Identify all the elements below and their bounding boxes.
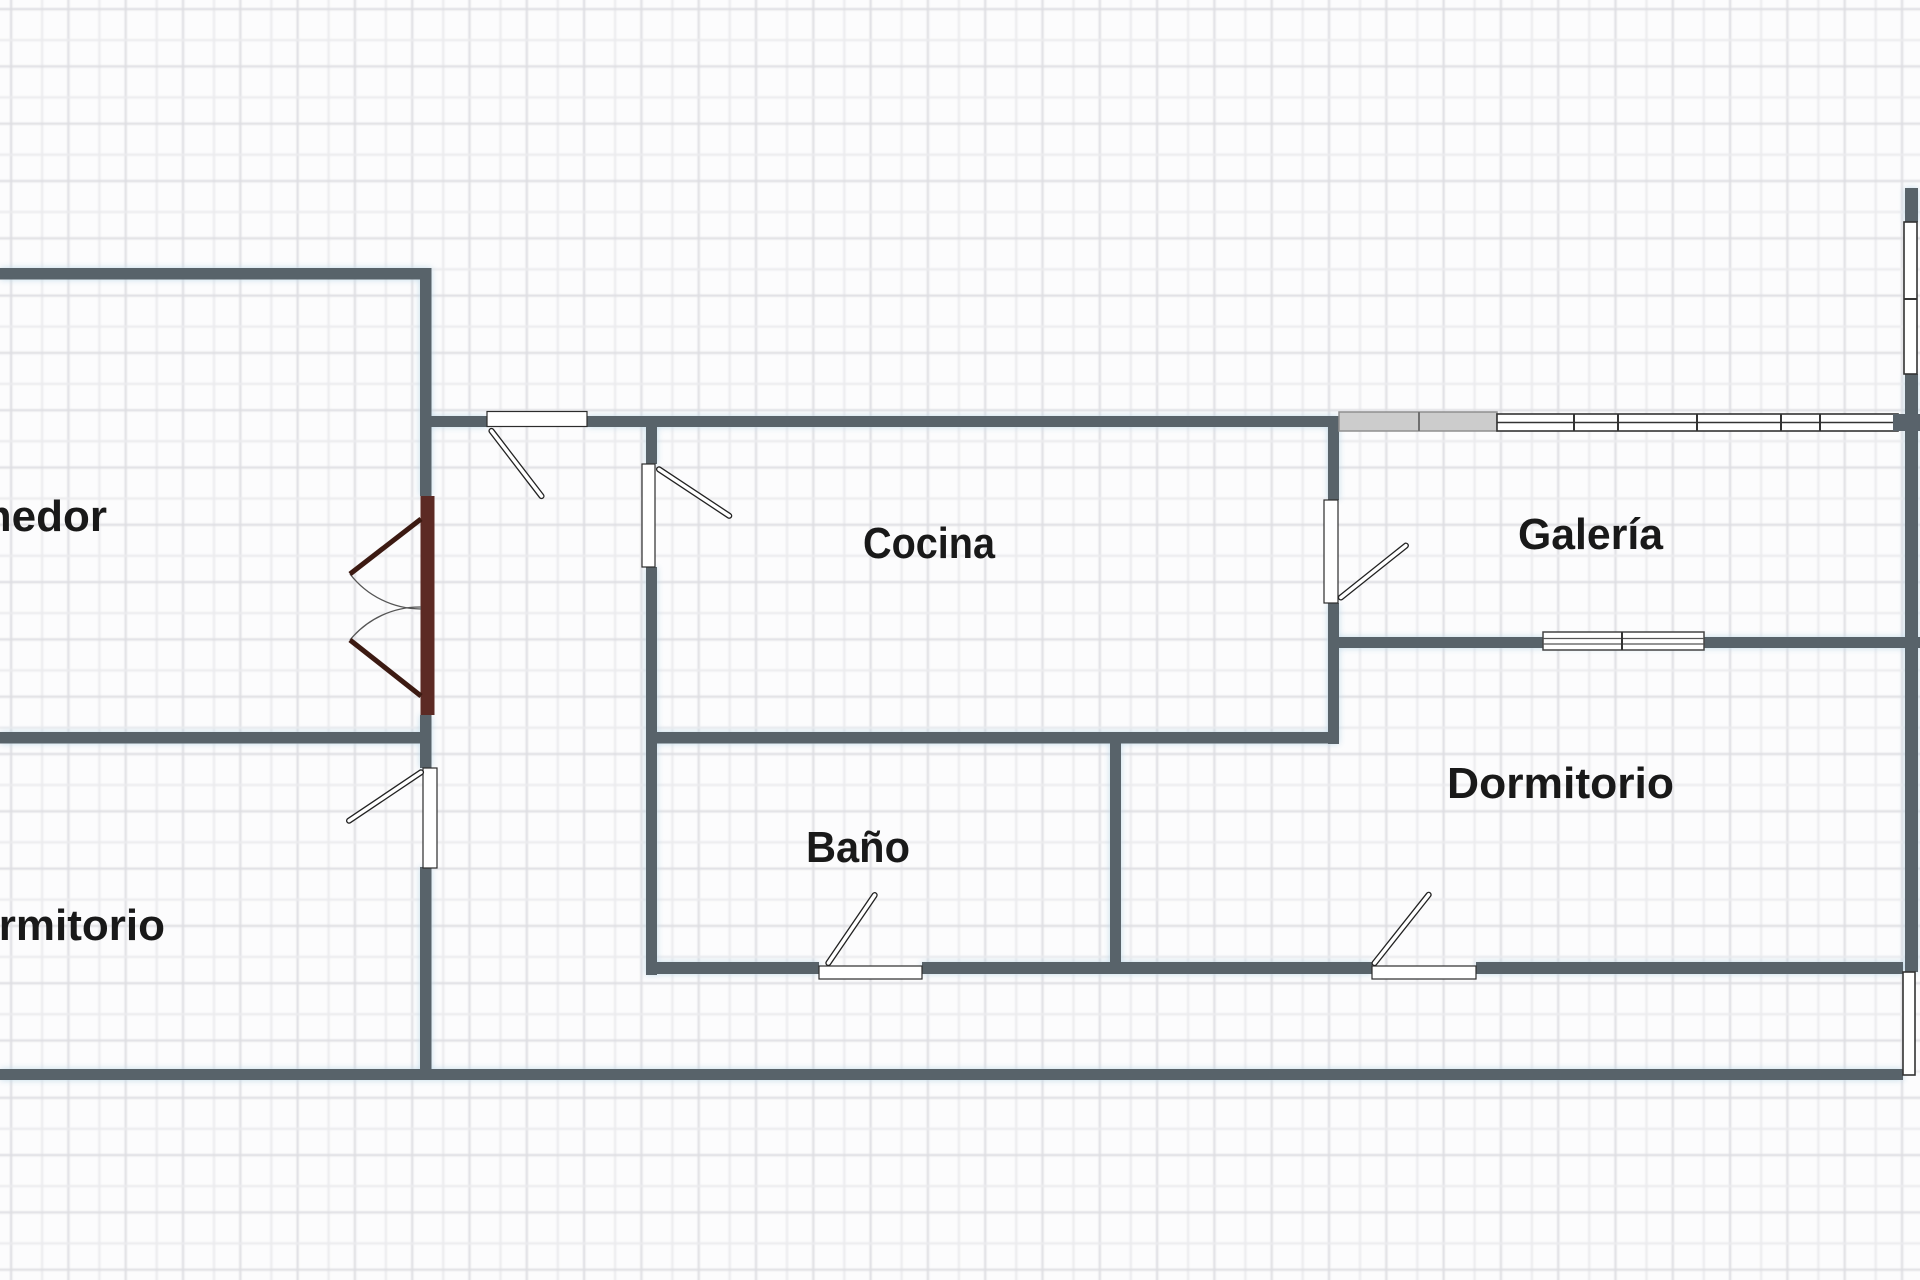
svg-text:Baño: Baño (806, 823, 910, 872)
svg-text:Comedor: Comedor (0, 492, 107, 541)
svg-text:Dormitorio: Dormitorio (1447, 759, 1674, 808)
svg-text:Galería: Galería (1518, 510, 1664, 559)
svg-text:Cocina: Cocina (863, 519, 995, 568)
svg-text:Dormitorio: Dormitorio (0, 901, 165, 950)
